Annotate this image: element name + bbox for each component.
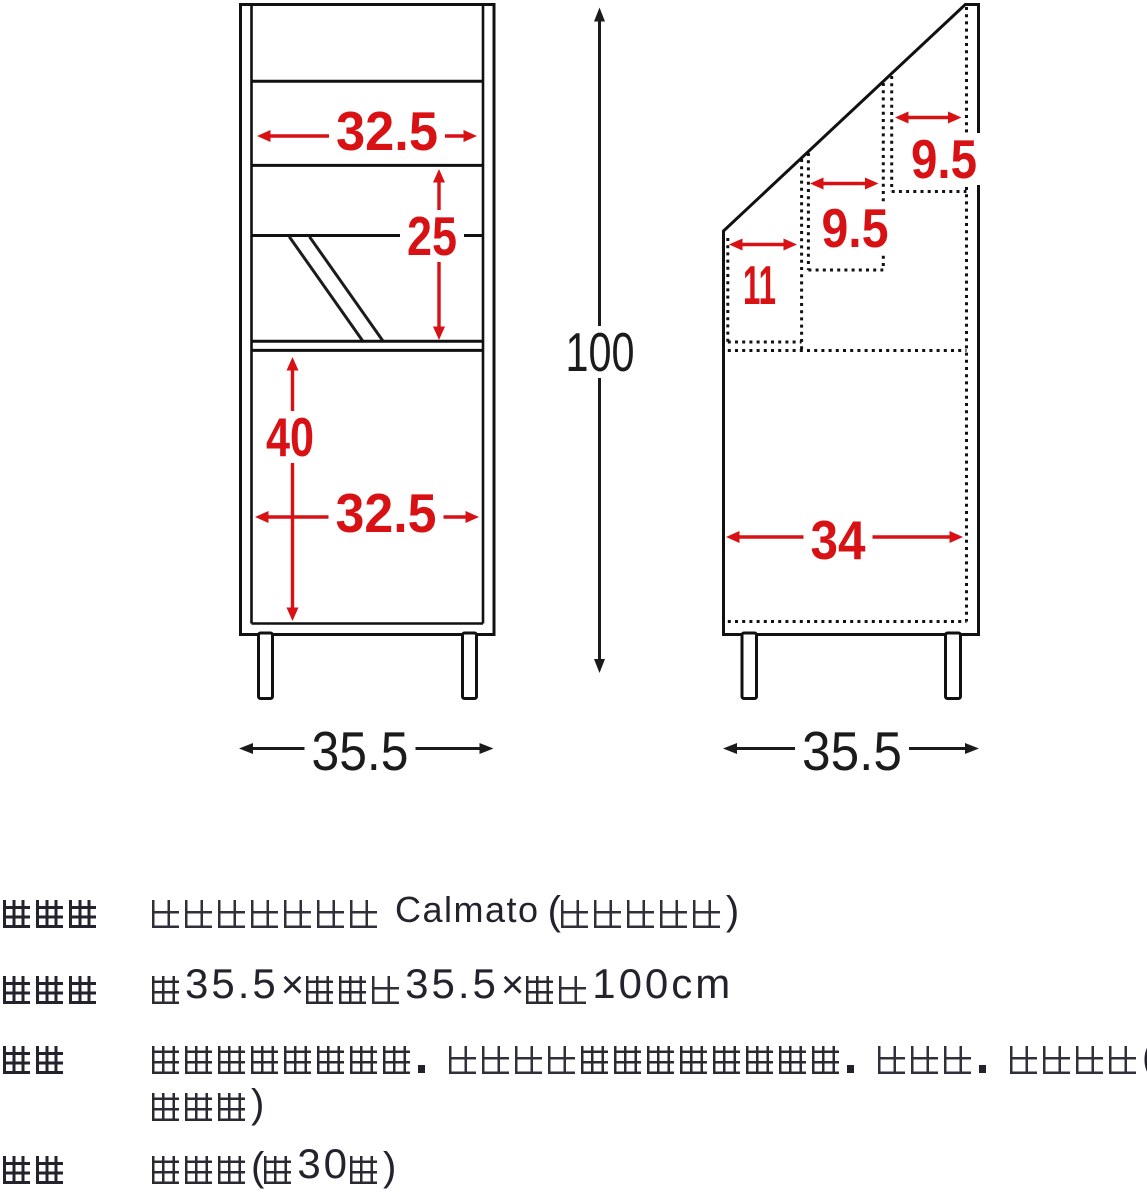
svg-text:35.5: 35.5 xyxy=(802,720,902,782)
svg-text:9.5: 9.5 xyxy=(822,197,889,259)
svg-text:25: 25 xyxy=(407,205,457,267)
svg-text:9.5: 9.5 xyxy=(911,128,977,190)
svg-text:11: 11 xyxy=(743,254,776,316)
svg-text:32.5: 32.5 xyxy=(336,100,438,162)
svg-text:34: 34 xyxy=(811,509,866,571)
svg-text:40: 40 xyxy=(266,406,314,468)
svg-text:32.5: 32.5 xyxy=(336,482,437,544)
svg-text:100: 100 xyxy=(566,321,635,383)
svg-text:35.5: 35.5 xyxy=(312,720,409,782)
